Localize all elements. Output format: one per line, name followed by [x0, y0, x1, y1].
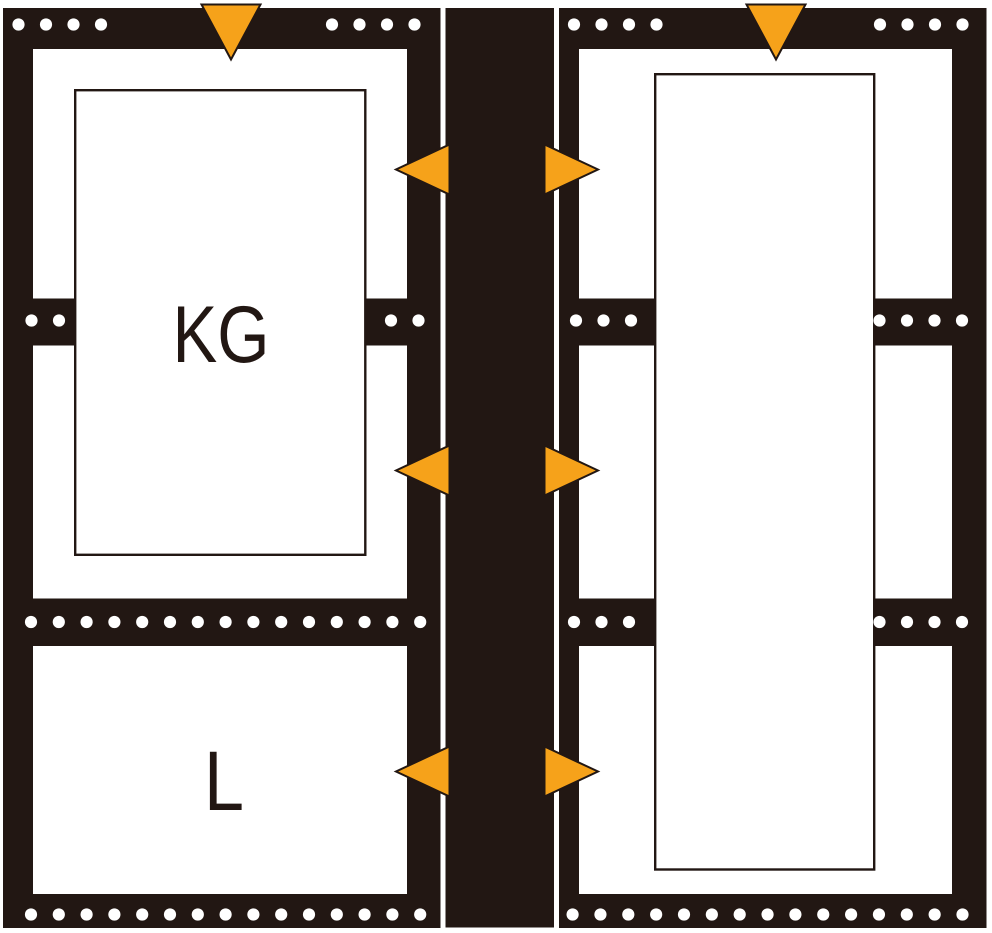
- svg-text:L: L: [204, 734, 244, 828]
- svg-text:KG: KG: [173, 290, 270, 380]
